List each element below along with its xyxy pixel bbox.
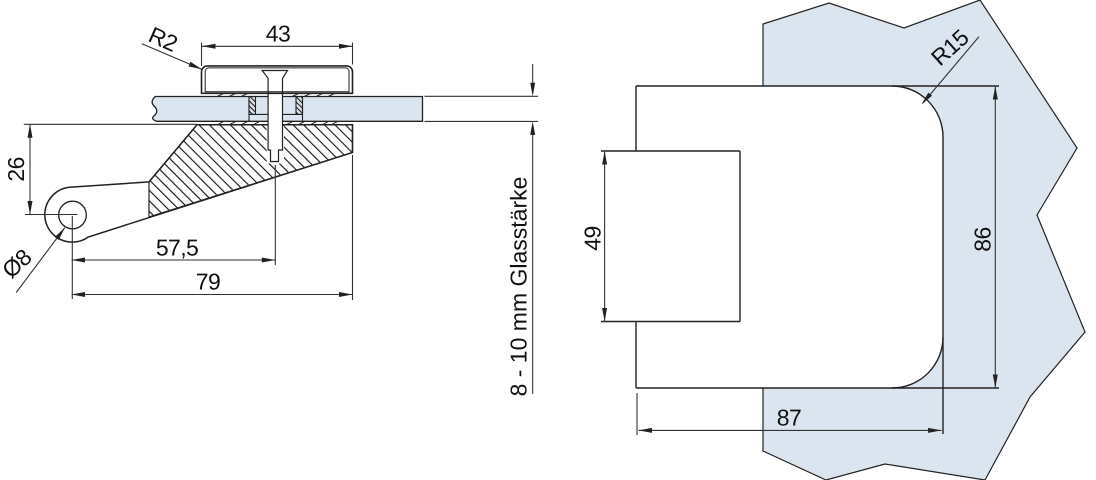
svg-text:8 - 10 mm Glasstärke: 8 - 10 mm Glasstärke: [506, 177, 532, 397]
svg-text:49: 49: [580, 226, 606, 250]
svg-text:43: 43: [266, 21, 290, 47]
svg-text:87: 87: [777, 405, 801, 431]
svg-text:R2: R2: [145, 21, 181, 56]
svg-text:86: 86: [970, 227, 996, 251]
svg-text:79: 79: [196, 269, 220, 295]
svg-text:Ø8: Ø8: [0, 244, 36, 283]
svg-text:26: 26: [3, 157, 29, 181]
svg-text:57,5: 57,5: [156, 235, 198, 261]
